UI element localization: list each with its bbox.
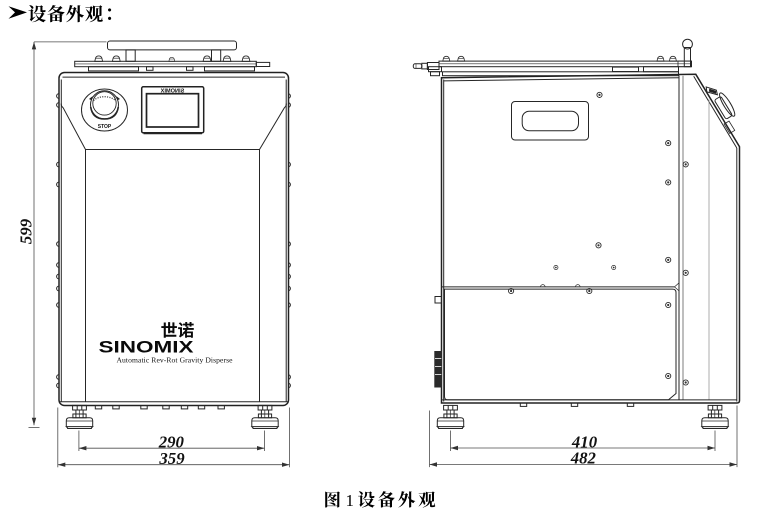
svg-text:STOP: STOP [98,124,112,130]
svg-text:SINOMIX: SINOMIX [99,339,194,357]
svg-text:482: 482 [570,448,596,467]
svg-text:Automatic Rev-Rot Gravity Disp: Automatic Rev-Rot Gravity Disperse [117,355,234,364]
svg-text:359: 359 [158,449,185,468]
svg-text:599: 599 [17,218,36,244]
svg-text:1: 1 [346,491,355,510]
